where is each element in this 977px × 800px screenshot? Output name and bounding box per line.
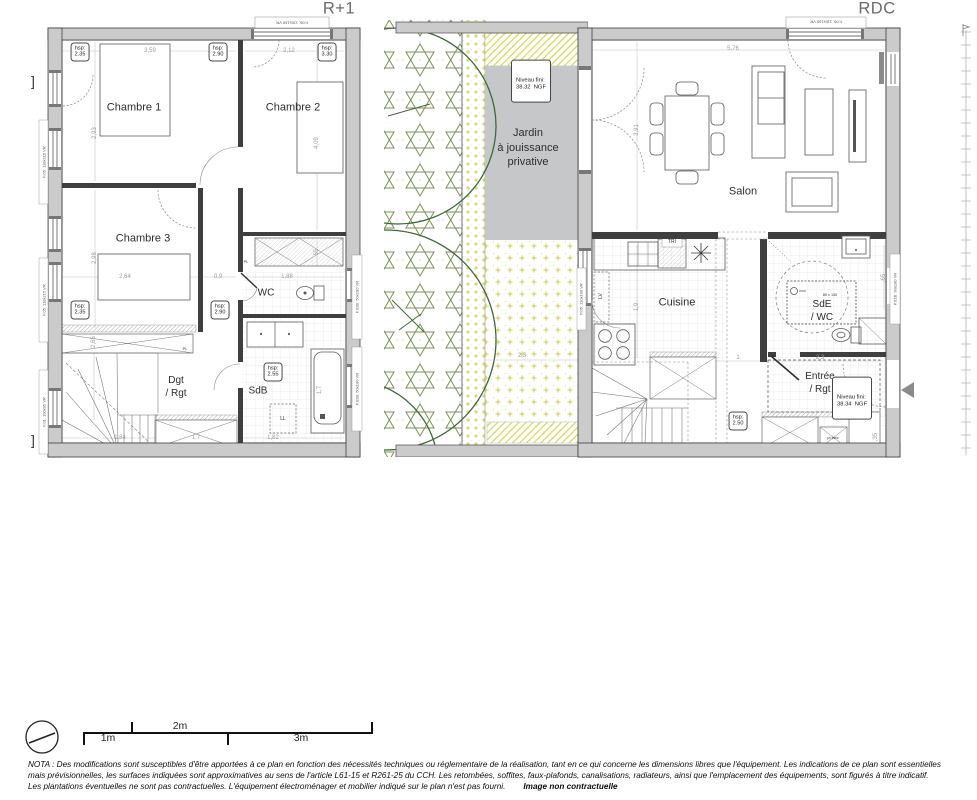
bed-icon — [297, 82, 343, 173]
window-ref-label: F.02B. 50x190 VR — [355, 281, 360, 313]
radiator-icon — [879, 52, 884, 84]
dimension: 2,65 — [91, 336, 97, 348]
bed-icon — [98, 254, 190, 300]
dimension: 2,64 — [119, 274, 131, 280]
room-label-dgt: Dgt / Rgt — [165, 374, 186, 400]
ceiling-height-badge: hsp:2.35 — [71, 301, 90, 320]
tri-label: TRI — [668, 239, 676, 245]
floorplan-drawing — [0, 0, 977, 800]
ceiling-height-badge: hsp:2.55 — [264, 363, 283, 382]
dimension: 0,9 — [214, 274, 222, 280]
rdc-shaft — [650, 352, 716, 399]
dimension: 4,09 — [314, 137, 320, 149]
dimension: ,65 — [881, 274, 887, 282]
dimension: 1,7 — [317, 386, 323, 394]
garden-label: Jardin à jouissance privative — [497, 126, 558, 170]
room-label-wc: WC — [258, 286, 275, 299]
room-label-salon: Salon — [729, 185, 757, 200]
vegetation-pattern — [384, 20, 462, 457]
dimension: 1,9 — [634, 303, 640, 311]
north-compass-icon — [26, 721, 58, 753]
window-ref-label: F.05. 110x215 VR — [42, 284, 47, 316]
dimension: 2,93 — [92, 127, 98, 139]
terrace-area — [485, 240, 578, 422]
tv-sideboard-icon — [849, 90, 866, 162]
bed-icon — [100, 44, 170, 136]
washbasin-icon — [842, 236, 870, 258]
dimension: ,35 — [873, 433, 879, 441]
ceiling-height-badge: hsp:2.35 — [71, 43, 90, 62]
hatched-band-bottom — [487, 422, 578, 443]
washing-machine-label: LL — [280, 416, 286, 422]
dimension: 2,3 — [816, 355, 824, 361]
room-label-cuisine: Cuisine — [659, 296, 696, 311]
closet-label: PL — [183, 347, 188, 351]
dimension: 1,84 — [114, 435, 126, 441]
window-ref-label: F.06. 110x160 VR — [276, 21, 308, 26]
dimension: 2,98 — [92, 252, 98, 264]
dimension: 2,3 — [518, 353, 526, 359]
dimension: 3,91 — [634, 124, 640, 136]
elec-panel-label: pt élec — [827, 436, 838, 440]
level-badge: Niveau fini:38.34 NGF — [832, 377, 872, 420]
room-label-sdb: SdB — [249, 384, 268, 397]
armchair-icon — [805, 89, 833, 155]
nota-line-3: Les plantations éventuelles ne sont pas … — [28, 782, 974, 791]
ceiling-height-badge: hsp:2.90 — [209, 43, 228, 62]
scale-label-1m: 1m — [101, 732, 116, 744]
section-mark: ] — [31, 432, 35, 448]
nota-line-1: NOTA : Des modifications sont susceptibl… — [28, 760, 974, 769]
closet-label: PL — [244, 260, 249, 264]
scale-label-3m: 3m — [294, 732, 309, 744]
shower-size-label: 80 x 130 — [823, 293, 838, 297]
scale-bar — [83, 722, 373, 745]
site-boundary — [901, 24, 971, 455]
dimension: 65 — [314, 249, 320, 256]
ceiling-height-badge: hsp:3.30 — [318, 43, 337, 62]
ceiling-height-badge: hsp:2.90 — [211, 301, 230, 320]
compass — [26, 721, 58, 753]
window-ref-label: P.01B. 90x190 VR — [893, 273, 898, 305]
dishwasher-label: LV — [598, 293, 604, 299]
dimension: 1,7 — [192, 435, 200, 441]
dimension: 1,88 — [281, 274, 293, 280]
image-note: Image non contractuelle — [523, 782, 617, 791]
gravel-strip — [462, 20, 485, 457]
room-label-chambre3: Chambre 3 — [116, 232, 170, 247]
room-label-entree: Entrée / Rgt — [805, 370, 834, 396]
entrance-arrow-icon — [901, 382, 914, 398]
dimension: 1,82 — [267, 435, 279, 441]
nota-line-2: mais prévisionnelles, les surfaces indiq… — [28, 771, 974, 780]
window-ref-label: P.05. 110x190 VR — [579, 283, 584, 315]
window-ref-label: F.06. 110x160 VR — [810, 20, 842, 25]
floorplan-page: R+1 RDC ] ] Chambre 1 Chambre 2 Chambre … — [0, 0, 977, 800]
dimension: 5,76 — [727, 46, 739, 52]
scale-label-2m: 2m — [173, 720, 188, 732]
room-label-sde: SdE / WC — [811, 298, 833, 324]
window-ref-label: F.05. 110x215 VR — [42, 146, 47, 178]
dimension: 3,59 — [144, 48, 156, 54]
bathtub-icon — [311, 349, 344, 433]
vent-icon — [691, 243, 711, 263]
ceiling-height-badge: hsp:2.50 — [729, 412, 748, 431]
level-badge: Niveau fini:38.32 NGF — [511, 60, 551, 103]
toilet-icon — [297, 286, 325, 300]
toilet-icon — [832, 327, 861, 343]
plan-title-rdc: RDC — [858, 0, 895, 19]
window-ref-label: F.01. 100x95 VR — [42, 397, 47, 427]
room-label-chambre2: Chambre 2 — [266, 101, 320, 116]
section-mark: ] — [31, 73, 35, 89]
double-washbasin-icon — [247, 322, 303, 347]
plan-title-r1: R+1 — [323, 0, 355, 19]
window-ref-label: F.02B. 50x190 VR — [355, 373, 360, 405]
plan-r1 — [39, 17, 362, 457]
sofa-icon — [752, 66, 785, 158]
dimension: 1 — [736, 355, 739, 361]
room-label-chambre1: Chambre 1 — [107, 101, 161, 116]
dimension: 2,12 — [283, 48, 295, 54]
